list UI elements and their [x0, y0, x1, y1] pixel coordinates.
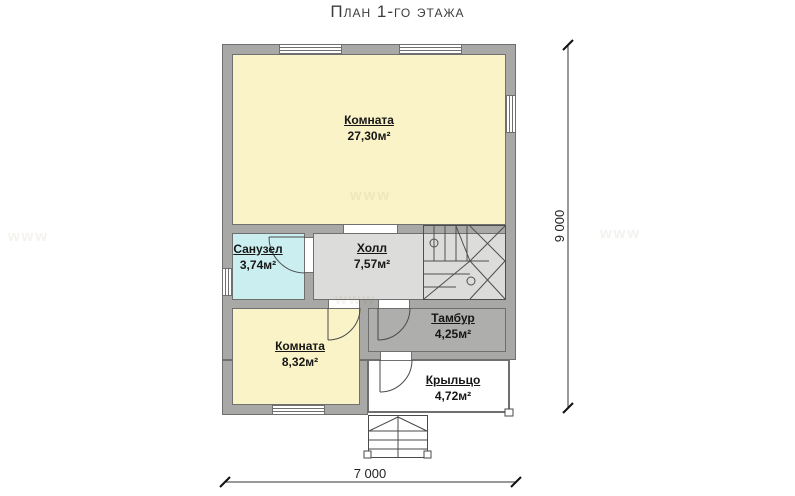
room-area: 4,25м²: [431, 326, 475, 342]
room-name: Комната: [275, 338, 325, 354]
label-porch: Крыльцо 4,72м²: [426, 372, 481, 404]
label-bathroom: Санузел 3,74м²: [233, 241, 282, 273]
door-arc-living-small: [328, 308, 360, 340]
floor-plan-page: План 1-го этажа www www www www: [0, 0, 795, 496]
room-name: Комната: [344, 112, 394, 128]
label-living-small: Комната 8,32м²: [275, 338, 325, 370]
label-living-large: Комната 27,30м²: [344, 112, 394, 144]
room-area: 4,72м²: [426, 388, 481, 404]
room-name: Санузел: [233, 241, 282, 257]
door-arc-porch: [380, 360, 412, 392]
room-area: 3,74м²: [233, 257, 282, 273]
room-area: 7,57м²: [354, 256, 390, 272]
room-name: Крыльцо: [426, 372, 481, 388]
dimension-width-label: 7 000: [354, 466, 387, 481]
dimension-width: 7 000: [220, 466, 521, 487]
label-hall: Холл 7,57м²: [354, 240, 390, 272]
staircase: [424, 226, 506, 300]
room-name: Тамбур: [431, 310, 475, 326]
room-name: Холл: [354, 240, 390, 256]
dimension-height-label: 9 000: [552, 210, 567, 243]
room-area: 8,32м²: [275, 354, 325, 370]
room-area: 27,30м²: [344, 128, 394, 144]
entrance-steps: [364, 409, 513, 458]
dimension-height: 9 000: [552, 40, 573, 413]
label-tambour: Тамбур 4,25м²: [431, 310, 475, 342]
door-arc-tambour: [378, 308, 410, 340]
plan-line-overlay: 9 000 7 000: [0, 0, 795, 496]
